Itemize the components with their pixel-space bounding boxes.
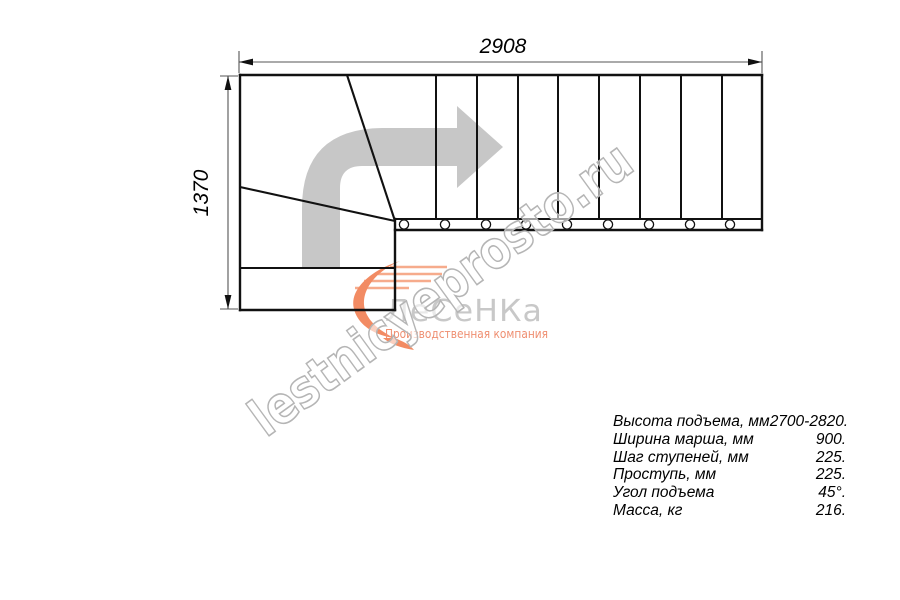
dimension-height: 1370	[190, 76, 238, 309]
spec-value: 45°.	[818, 484, 846, 502]
spec-row-height: Высота подъема, мм 2700-2820.	[613, 413, 846, 431]
spec-value: 900.	[816, 431, 846, 449]
dimension-width: 2908	[239, 35, 762, 73]
spec-value: 225.	[816, 466, 846, 484]
spec-row-mass: Масса, кг 216.	[613, 502, 846, 520]
spec-label: Шаг ступеней, мм	[613, 449, 749, 467]
dim-height-label: 1370	[190, 169, 213, 216]
spec-label: Ширина марша, мм	[613, 431, 754, 449]
dim-width-label: 2908	[479, 35, 527, 58]
stair-drawing-page: ЛеСеНКа Производственная компания	[0, 0, 900, 600]
spec-value: 216.	[816, 502, 846, 520]
spec-label: Угол подъема	[613, 484, 714, 502]
specs-table: Высота подъема, мм 2700-2820. Ширина мар…	[613, 413, 846, 520]
spec-value: 2700-2820.	[770, 413, 848, 431]
spec-label: Масса, кг	[613, 502, 682, 520]
spec-row-tread-depth: Проступь, мм 225.	[613, 466, 846, 484]
watermark-text: lestnicyeprosto.ru	[238, 131, 644, 449]
spec-value: 225.	[816, 449, 846, 467]
spec-row-flight-width: Ширина марша, мм 900.	[613, 431, 846, 449]
spec-row-climb-angle: Угол подъема 45°.	[613, 484, 846, 502]
spec-label: Проступь, мм	[613, 466, 716, 484]
spec-row-step-pitch: Шаг ступеней, мм 225.	[613, 449, 846, 467]
spec-label: Высота подъема, мм	[613, 413, 770, 431]
